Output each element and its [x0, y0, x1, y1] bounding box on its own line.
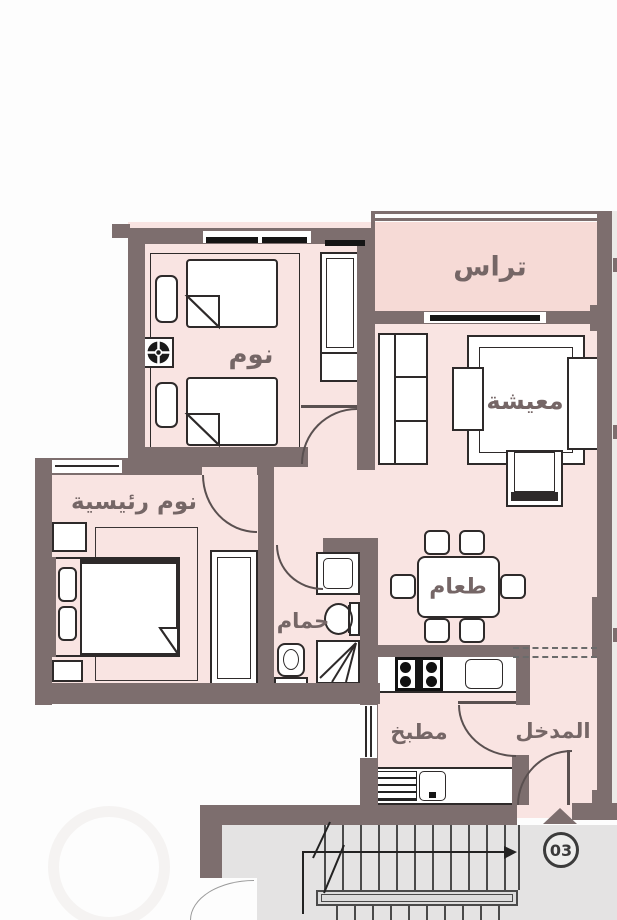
bedroom-window-glass: [262, 237, 307, 243]
terrace-parapet: [371, 211, 375, 231]
stair-treads-lower: [320, 906, 516, 920]
stove-burner-2: [400, 676, 411, 687]
bathroom-vanity-sink: [323, 558, 353, 589]
master-bed-blanket-edge: [80, 559, 178, 564]
bedroom-nightstand: [143, 337, 174, 368]
master-window-glass: [55, 465, 119, 467]
label-entrance: المدخل: [515, 719, 590, 743]
wardrobe-rail: [325, 240, 365, 246]
ceiling-beam-line: [513, 647, 597, 658]
wall: [597, 211, 612, 818]
master-nightstand-top: [52, 522, 87, 552]
dining-chair-right: [500, 574, 526, 599]
outside-area-top-left: [35, 222, 128, 458]
kitchen-window-glass: [365, 706, 367, 757]
terrace-parapet: [371, 218, 612, 221]
living-sofa-cushion-line-1: [396, 376, 426, 378]
bedroom-window-glass: [206, 237, 258, 243]
bidet-bowl-inner: [283, 649, 299, 670]
living-armchair-bottom-seat: [514, 452, 555, 492]
outside-area-bottom-left: [35, 704, 360, 818]
bedroom-wardrobe-inner: [326, 258, 354, 348]
adjacent-wall-mark: [613, 258, 617, 272]
dining-chair-bottom-2: [459, 618, 485, 643]
terrace-sliding-door-glass: [430, 315, 540, 321]
dining-chair-top-1: [424, 530, 450, 555]
label-bathroom: حمام: [277, 609, 330, 633]
wall: [128, 228, 145, 468]
master-bed-blanket: [80, 559, 178, 655]
living-armchair-left: [452, 367, 484, 431]
master-nightstand-bottom: [52, 660, 83, 682]
wall: [35, 458, 52, 705]
master-wardrobe-inner: [217, 557, 251, 679]
adjacent-wall-mark: [613, 628, 617, 642]
kitchen-door-leaf: [458, 701, 516, 704]
master-bed-pillow-2: [58, 606, 77, 641]
dining-chair-top-2: [459, 530, 485, 555]
stove-burner-1: [400, 662, 411, 673]
dining-chair-left: [390, 574, 416, 599]
label-living: معيشة: [486, 387, 563, 415]
entrance-door-leaf: [567, 750, 570, 805]
shower-tray: [316, 640, 360, 684]
master-bed-pillow-1: [58, 567, 77, 602]
stair-landing-inner: [321, 894, 513, 902]
living-sofa-back-line: [394, 335, 396, 463]
kitchen-window-glass: [370, 706, 372, 757]
kitchen-washbasin-drain: [429, 792, 436, 798]
wall: [360, 645, 516, 657]
kitchen-stove-center-bar: [415, 659, 423, 689]
twin-bed-1-pillow: [155, 275, 178, 323]
terrace-parapet: [371, 211, 612, 214]
wall: [35, 683, 380, 704]
adjacent-wall-mark: [613, 425, 617, 439]
unit-number: 03: [550, 841, 572, 860]
wall: [200, 805, 517, 825]
wall: [357, 228, 375, 470]
twin-bed-1: [186, 259, 278, 328]
wall: [572, 803, 617, 820]
stair-treads: [308, 825, 520, 890]
twin-bed-2-pillow: [155, 382, 178, 428]
living-armchair-right: [567, 357, 600, 450]
label-terrace: تراس: [453, 252, 526, 283]
kitchen-sink: [465, 659, 503, 689]
entry-arrow: [543, 808, 577, 824]
unit-number-badge: 03: [543, 832, 579, 868]
label-bedroom: نوم: [228, 340, 273, 370]
floor-plan: 03 تراس نوم معيشة نوم رئيسية طعام حمام م…: [0, 0, 617, 920]
living-armchair-bottom-band: [511, 492, 558, 501]
watermark-circle: [48, 806, 170, 920]
wall: [257, 458, 274, 475]
label-kitchen: مطبخ: [390, 720, 447, 744]
label-master-bedroom: نوم رئيسية: [71, 489, 197, 515]
twin-bed-2: [186, 377, 278, 446]
living-sofa: [378, 333, 428, 465]
wall: [258, 475, 274, 683]
living-sofa-cushion-line-2: [396, 420, 426, 422]
kitchen-window: [360, 705, 377, 758]
dining-chair-bottom-1: [424, 618, 450, 643]
bedroom-door-leaf: [301, 405, 357, 408]
refrigerator-grille: [377, 771, 417, 801]
bedroom-wardrobe-divider: [322, 352, 358, 354]
adjacent-unit-strip: [612, 211, 617, 818]
stove-burner-4: [426, 676, 437, 687]
label-dining: طعام: [429, 575, 487, 600]
stove-burner-3: [426, 662, 437, 673]
